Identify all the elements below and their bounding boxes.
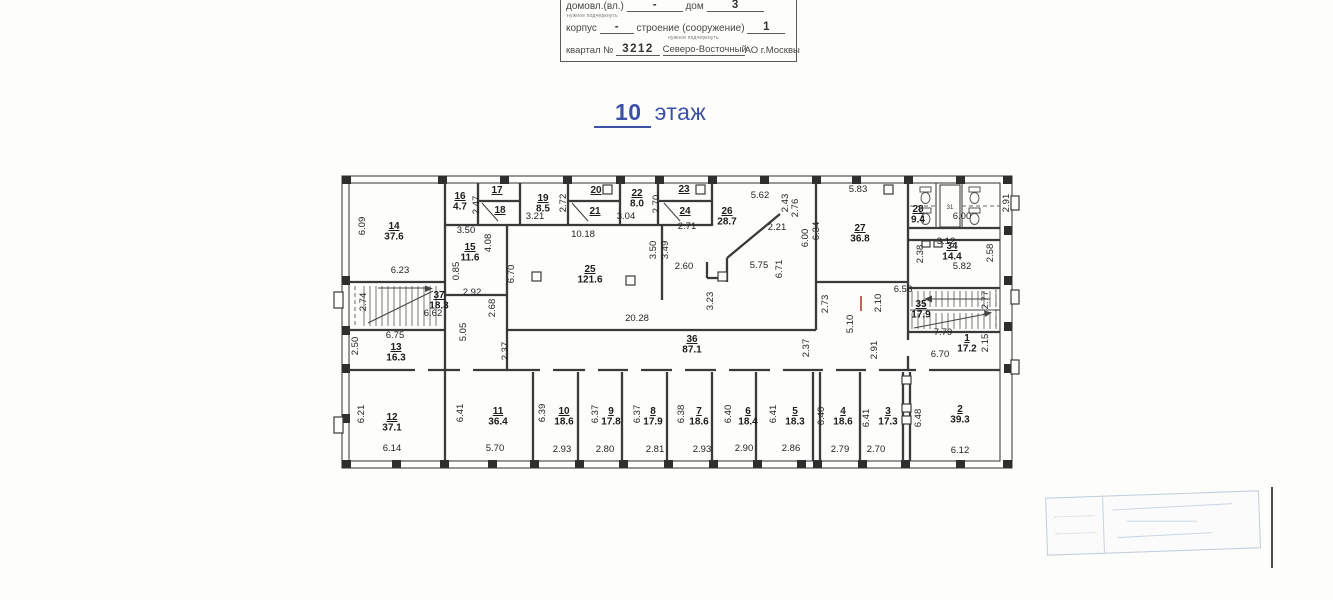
dimension-label: 6.00	[800, 229, 811, 248]
dimension-label: 6.14	[383, 443, 402, 454]
dimension-label: 5.05	[458, 323, 469, 342]
room-area: 37.6	[384, 232, 404, 243]
room-area: 37.1	[382, 423, 402, 434]
dimension-label: 2.60	[675, 261, 694, 272]
dimension-label: 2.21	[768, 222, 787, 233]
dimension-label: 2.10	[873, 294, 884, 313]
dimension-label: 5.10	[845, 315, 856, 334]
dimension-label: 6.48	[913, 409, 924, 428]
dimension-label: 2.91	[869, 341, 880, 360]
dimension-label: 2.15	[980, 334, 991, 353]
dimension-label: 6.41	[861, 409, 872, 428]
dimension-label: 2.81	[646, 444, 665, 455]
room-number: 25	[584, 264, 596, 275]
room-number: 5	[792, 406, 798, 417]
room-area: 4.7	[453, 202, 467, 213]
room-number: 18	[494, 205, 506, 216]
room-area: 8.0	[630, 199, 644, 210]
dimension-label: 6.37	[632, 405, 643, 424]
dimension-label: 5.62	[751, 190, 770, 201]
dimension-label: 4.08	[483, 234, 494, 253]
room-number: 8	[650, 406, 656, 417]
dimension-label: 2.37	[801, 339, 812, 358]
dimension-label: 3.50	[457, 225, 476, 236]
room-area: 17.8	[601, 417, 621, 428]
room-number: 3	[885, 406, 891, 417]
dimension-label: 3.04	[617, 211, 636, 222]
room-number: 15	[464, 242, 476, 253]
dimension-label: 7.79	[934, 327, 953, 338]
room-number: 14	[388, 221, 400, 232]
dimension-label: 2.79	[831, 444, 850, 455]
dimension-label: 6.34	[811, 222, 822, 241]
room-number: 16	[454, 191, 466, 202]
room-number: 9	[608, 406, 614, 417]
room-area: 121.6	[577, 275, 602, 286]
dimension-label: 6.70	[506, 265, 517, 284]
room-number: 24	[679, 206, 691, 217]
dimension-label: 2.73	[820, 295, 831, 314]
scanned-floor-plan-page: домовл.(вл.) - дом 3 нужное подчеркнуть …	[0, 0, 1333, 600]
dimension-label: 6.41	[768, 405, 779, 424]
dimension-label: 6.70	[931, 349, 950, 360]
dimension-label: 2.38	[915, 245, 926, 264]
room-number: 36	[686, 334, 698, 345]
dimension-label: 5.83	[849, 184, 868, 195]
room-number: 17	[491, 185, 503, 196]
dimension-label: 2.70	[867, 444, 886, 455]
dimension-label: 2.93	[693, 444, 712, 455]
dimension-label: 2.91	[1001, 194, 1012, 213]
door-openings	[415, 340, 929, 373]
dimension-label: 2.50	[350, 337, 361, 356]
dimension-label: 3.21	[526, 211, 545, 222]
room-number: 37	[433, 290, 445, 301]
dimension-label: 6.75	[386, 330, 405, 341]
dimension-label: 2.68	[487, 299, 498, 318]
dimension-label: 2.47	[471, 196, 482, 215]
dimension-label: 2.76	[790, 199, 801, 218]
dimension-label: 3.23	[705, 292, 716, 311]
dimension-label: 5.82	[953, 261, 972, 272]
room-number: 6	[745, 406, 751, 417]
interior-walls	[349, 183, 1000, 461]
room-area: 18.6	[689, 417, 709, 428]
dimension-label: 2.93	[553, 444, 572, 455]
room-number: 1	[964, 333, 970, 344]
room-area: 16.3	[386, 353, 406, 364]
room-number: 28	[912, 204, 924, 215]
room-area: 18.4	[738, 417, 758, 428]
room-area: 18.6	[833, 417, 853, 428]
dimension-label: 6.37	[590, 405, 601, 424]
dimension-label: 2.37	[500, 342, 511, 361]
dimension-label: 2.77	[980, 291, 991, 310]
dimension-label: 6.62	[424, 308, 443, 319]
room-number: 21	[589, 206, 601, 217]
dimension-label: 6.40	[816, 407, 827, 426]
dimension-label: 3.49	[660, 241, 671, 260]
stall-number: 31	[947, 205, 954, 211]
room-area: 17.9	[911, 310, 931, 321]
room-number: 27	[854, 223, 866, 234]
dimension-label: 6.58	[894, 284, 913, 295]
room-number: 19	[537, 193, 549, 204]
room-area: 28.7	[717, 217, 737, 228]
room-area: 39.3	[950, 415, 970, 426]
room-area: 9.4	[911, 215, 925, 226]
room-number: 7	[696, 406, 702, 417]
dimension-label: 6.71	[774, 260, 785, 279]
room-number: 26	[721, 206, 733, 217]
dimension-label: 2.80	[596, 444, 615, 455]
dimension-label: 6.09	[357, 217, 368, 236]
room-area: 17.2	[957, 344, 977, 355]
room-number: 12	[386, 412, 398, 423]
dimension-label: 10.18	[571, 229, 595, 240]
dimension-label: 6.38	[676, 405, 687, 424]
dimension-label: 2.86	[782, 443, 801, 454]
dimension-label: 2.58	[985, 244, 996, 263]
room-number: 4	[840, 406, 846, 417]
approval-stamp	[1045, 490, 1261, 555]
dimension-label: 2.92	[463, 287, 482, 298]
dimension-label: 3.12	[937, 236, 956, 247]
room-area: 18.3	[785, 417, 805, 428]
dimension-label: 5.70	[486, 443, 505, 454]
dimension-label: 2.72	[558, 194, 569, 213]
dimension-label: 0.85	[451, 262, 462, 281]
room-number: 35	[915, 299, 927, 310]
room-area: 17.3	[878, 417, 898, 428]
dimension-label: 6.21	[356, 405, 367, 424]
room-number: 23	[678, 184, 690, 195]
dimension-label: 6.39	[537, 404, 548, 423]
room-number: 22	[631, 188, 643, 199]
dimension-label: 6.23	[391, 265, 410, 276]
room-number: 20	[590, 185, 602, 196]
room-area: 18.6	[554, 417, 574, 428]
dimension-label: 2.71	[678, 221, 697, 232]
room-area: 36.8	[850, 234, 870, 245]
dimension-label: 6.40	[723, 405, 734, 424]
room-number: 11	[493, 406, 504, 417]
dimension-label: 5.75	[750, 260, 769, 271]
room-area: 17.9	[643, 417, 663, 428]
scan-artifact-line	[1271, 487, 1273, 568]
dimension-label: 20.28	[625, 313, 649, 324]
room-area: 11.6	[461, 253, 480, 264]
dimension-label: 2.74	[358, 293, 369, 312]
stairwell-left	[364, 286, 436, 327]
room-area: 36.4	[488, 417, 508, 428]
dimension-label: 2.90	[735, 443, 754, 454]
room-area: 87.1	[682, 345, 702, 356]
room-number: 10	[558, 406, 570, 417]
dimension-label: 6.12	[951, 445, 970, 456]
room-number: 2	[957, 404, 963, 415]
dimension-label: 6.41	[455, 404, 466, 423]
room-number: 13	[390, 342, 402, 353]
dimension-label: 2.70	[651, 195, 662, 214]
dimension-label: 6.00	[953, 211, 972, 222]
dimension-label: 3.50	[648, 241, 659, 260]
